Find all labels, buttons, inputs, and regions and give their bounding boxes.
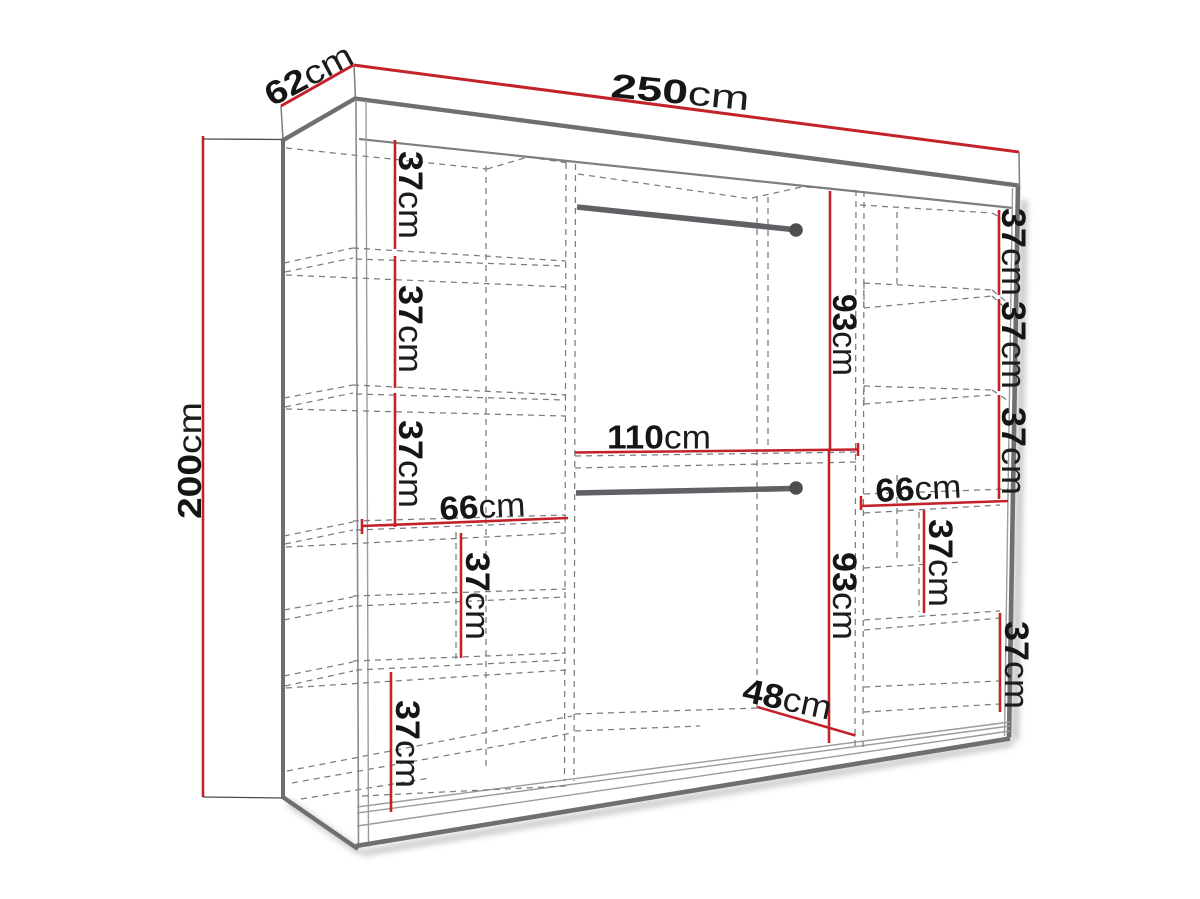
svg-text:66cm: 66cm <box>874 468 962 509</box>
svg-text:93cm: 93cm <box>825 294 863 376</box>
svg-text:37cm: 37cm <box>997 621 1035 709</box>
svg-text:37cm: 37cm <box>994 407 1032 495</box>
svg-text:37cm: 37cm <box>458 552 496 640</box>
svg-text:93cm: 93cm <box>825 552 863 640</box>
svg-text:110cm: 110cm <box>607 419 711 456</box>
svg-text:37cm: 37cm <box>391 151 429 239</box>
svg-text:37cm: 37cm <box>388 700 426 788</box>
svg-text:37cm: 37cm <box>391 420 429 508</box>
svg-text:37cm: 37cm <box>994 208 1032 296</box>
svg-text:37cm: 37cm <box>921 519 959 607</box>
svg-text:200cm: 200cm <box>171 402 208 519</box>
svg-text:66cm: 66cm <box>438 486 526 527</box>
svg-text:37cm: 37cm <box>391 285 429 373</box>
svg-text:37cm: 37cm <box>994 301 1032 389</box>
